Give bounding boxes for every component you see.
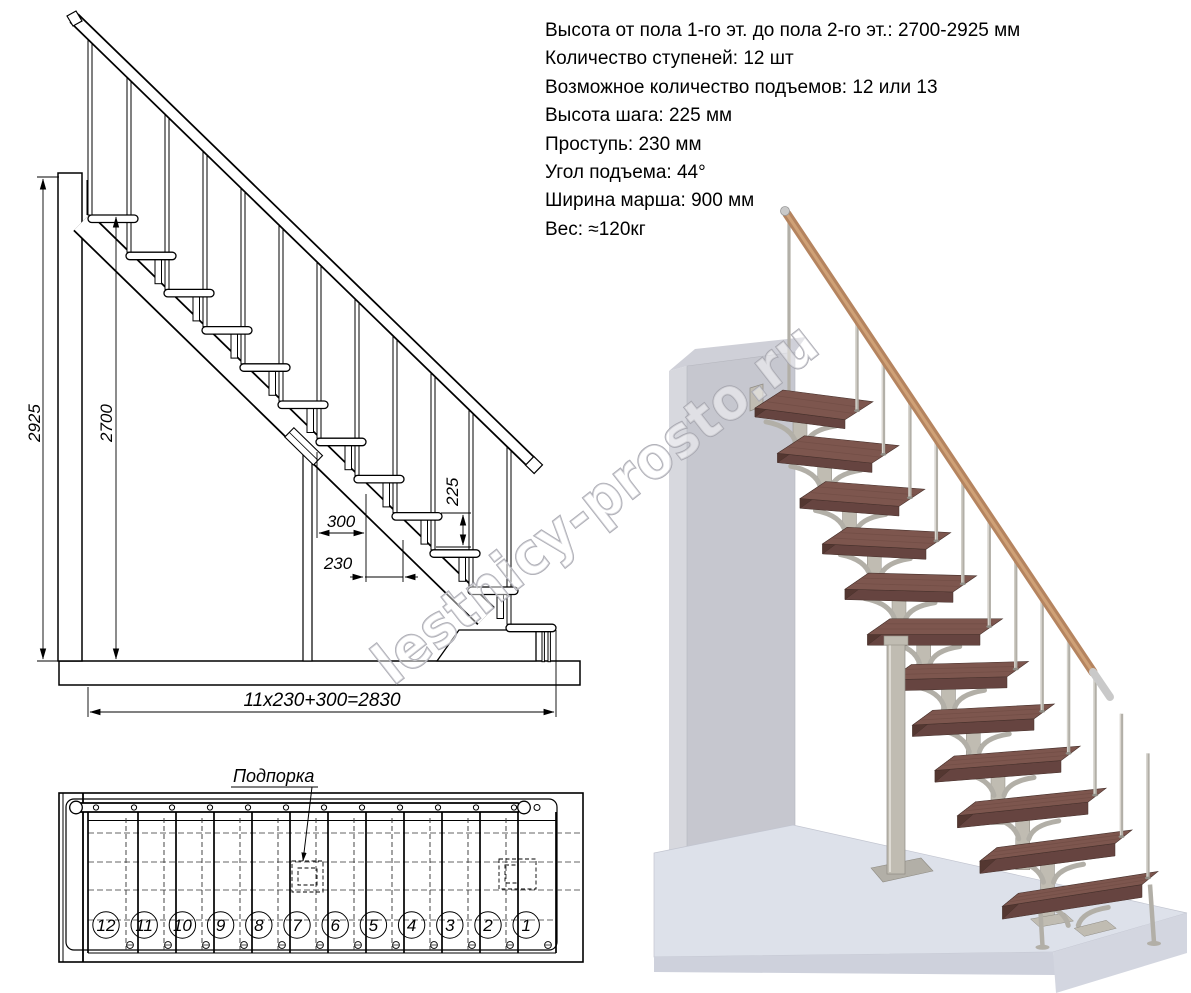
center-support-post xyxy=(303,455,312,661)
side-step-post xyxy=(497,594,504,619)
render-leg xyxy=(1041,912,1043,946)
render-baluster-base xyxy=(1066,752,1072,755)
side-baluster xyxy=(431,370,435,550)
plan-handrail xyxy=(70,801,540,814)
spec-line-rise-height: Высота шага: 225 мм xyxy=(545,102,1165,130)
side-tread xyxy=(392,513,442,521)
dim-label-225: 225 xyxy=(443,477,462,507)
plan-view-drawing: 121110987654321 Подпорка xyxy=(40,753,600,993)
render-leg-foot xyxy=(1147,941,1161,946)
side-baluster xyxy=(507,444,511,624)
plan-rail-fitting xyxy=(283,805,288,810)
side-step-post xyxy=(459,556,466,581)
side-step-post xyxy=(193,296,200,321)
render-handrail-cap xyxy=(781,207,790,216)
render-baluster-base xyxy=(1092,794,1098,797)
side-tread xyxy=(278,401,328,409)
side-baluster xyxy=(469,407,473,587)
spec-line-tread: Проступь: 230 мм xyxy=(545,131,1165,159)
render-baluster-base xyxy=(1145,877,1151,880)
plan-step-number: 3 xyxy=(445,916,455,935)
dim-label-total-run: 11x230+300=2830 xyxy=(243,690,401,711)
side-tread xyxy=(202,327,252,335)
side-step-post xyxy=(383,482,390,507)
plan-rail-fitting xyxy=(131,805,136,810)
plan-rail-fitting xyxy=(473,805,478,810)
render-center-post-cap xyxy=(884,636,908,645)
side-step-post xyxy=(345,445,352,470)
render-tread xyxy=(845,573,977,592)
plan-step-number: 11 xyxy=(135,916,153,935)
side-tread xyxy=(430,550,480,558)
render-tread xyxy=(868,619,1003,635)
render-baluster-base xyxy=(960,583,966,586)
side-steps xyxy=(88,215,556,662)
render-leg-foot xyxy=(1036,945,1050,950)
plan-rail-fitting xyxy=(359,805,364,810)
side-tread xyxy=(316,438,366,446)
side-step-post xyxy=(421,519,428,544)
render-bracket-arm xyxy=(816,510,846,532)
dim-label-230: 230 xyxy=(323,554,353,573)
side-baluster xyxy=(127,74,131,252)
plan-rail-fitting xyxy=(511,805,516,810)
render-baluster-base xyxy=(854,409,860,412)
plan-step-number: 2 xyxy=(482,916,493,935)
render-baluster-base xyxy=(1039,710,1045,713)
dim-label-2925: 2925 xyxy=(25,404,44,443)
side-baluster xyxy=(88,37,92,215)
side-tread xyxy=(354,475,404,483)
side-step-post xyxy=(548,631,550,662)
render-baluster-base xyxy=(986,625,992,628)
plan-step-number: 4 xyxy=(407,916,416,935)
stringer xyxy=(82,222,536,661)
plan-step-number: 10 xyxy=(173,916,192,935)
floor-slab xyxy=(59,661,580,685)
render-tread xyxy=(890,661,1028,679)
plan-rail-fitting xyxy=(169,805,174,810)
dim-label-2700: 2700 xyxy=(97,404,116,443)
render-baluster-base xyxy=(907,496,913,499)
side-elevation-drawing: 2925 2700 300 230 225 11x230+300=2830 xyxy=(0,0,620,760)
side-tread xyxy=(126,252,176,260)
stair-drawing-page: 2925 2700 300 230 225 11x230+300=2830 Вы… xyxy=(0,0,1191,993)
plan-step-number: 9 xyxy=(216,916,226,935)
wall-side xyxy=(669,366,687,882)
spec-line-height: Высота от пола 1-го эт. до пола 2-го эт.… xyxy=(545,17,1165,45)
render-baluster-base xyxy=(1119,835,1125,838)
render-bracket-arm xyxy=(955,690,985,708)
spec-line-rises: Возможное количество подъемов: 12 или 13 xyxy=(545,74,1165,102)
side-step-post xyxy=(155,259,162,284)
spec-line-angle: Угол подъема: 44° xyxy=(545,159,1165,187)
side-tread xyxy=(164,289,214,297)
side-tread xyxy=(506,624,556,632)
side-step-post xyxy=(269,370,276,395)
dim-label-300: 300 xyxy=(327,512,356,531)
plan-step-number: 1 xyxy=(521,916,530,935)
support-label: Подпорка xyxy=(233,766,314,786)
render-bracket-arm xyxy=(1029,821,1059,839)
plan-rail-fitting xyxy=(245,805,250,810)
render-bracket-arm xyxy=(1004,777,1034,795)
plan-rail-fitting xyxy=(397,805,402,810)
plan-rail-fitting xyxy=(435,805,440,810)
plan-step-number: 6 xyxy=(330,916,340,935)
side-step-post xyxy=(307,408,314,433)
side-baluster xyxy=(317,259,321,438)
side-baluster xyxy=(165,111,169,289)
render-bracket-arm xyxy=(865,599,895,621)
side-tread xyxy=(240,364,290,372)
side-baluster xyxy=(241,185,245,364)
plan-rail-fitting xyxy=(321,805,326,810)
render-baluster-base xyxy=(1013,668,1019,671)
side-step-post xyxy=(542,631,544,662)
side-baluster xyxy=(393,333,397,513)
render-baluster-base xyxy=(933,540,939,543)
side-baluster xyxy=(279,222,283,401)
side-step-post xyxy=(231,333,238,358)
plan-rail-fitting xyxy=(93,805,98,810)
render-bracket-arm xyxy=(1054,864,1084,882)
wall-front xyxy=(687,352,795,874)
plan-step-number: 5 xyxy=(369,916,379,935)
stringer-foot xyxy=(437,630,536,661)
plan-rail-fitting xyxy=(207,805,212,810)
wall-post xyxy=(58,173,82,661)
render-baluster-base xyxy=(880,453,886,456)
plan-step-number: 7 xyxy=(292,916,302,935)
plan-step-number: 12 xyxy=(97,916,116,935)
side-baluster xyxy=(355,296,359,475)
render-bracket-arm xyxy=(979,734,1009,752)
render-bracket-arm xyxy=(930,647,960,665)
spec-line-steps: Количество ступеней: 12 шт xyxy=(545,45,1165,73)
render-bracket-arm xyxy=(905,603,935,621)
side-balusters xyxy=(88,37,511,625)
side-tread xyxy=(468,587,518,595)
stair-3d-render xyxy=(650,200,1191,993)
plan-step-number: 8 xyxy=(254,916,264,935)
side-baluster xyxy=(203,148,207,326)
render-bracket-arm xyxy=(840,555,870,577)
side-tread xyxy=(88,215,138,223)
